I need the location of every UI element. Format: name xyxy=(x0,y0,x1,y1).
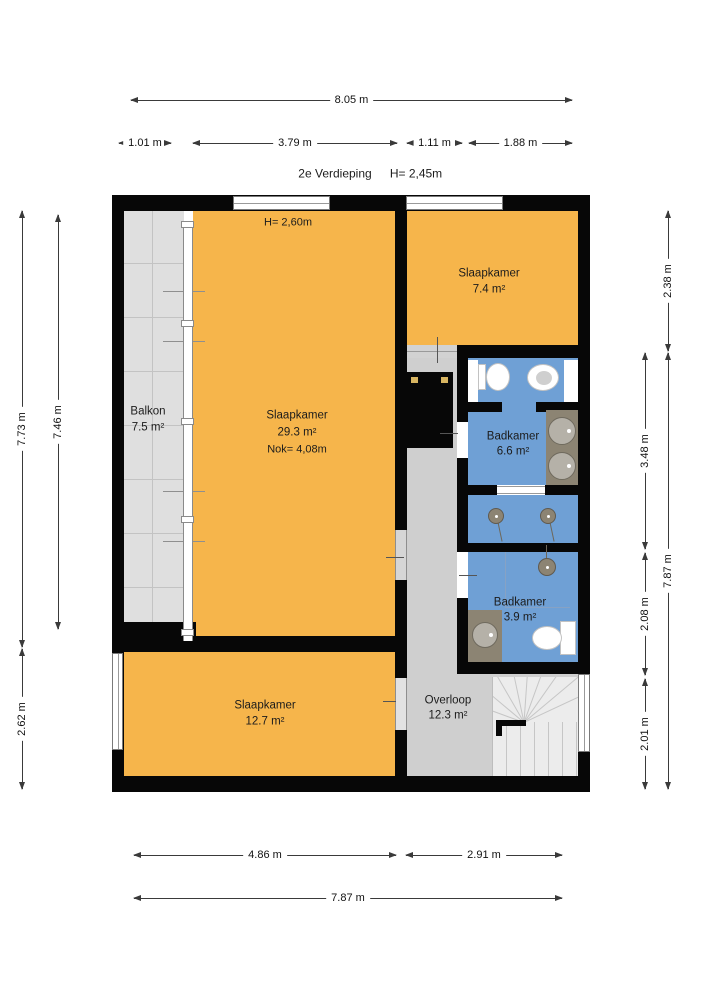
wall-bedroom-right-upper xyxy=(395,211,407,530)
wall-shower-bottom xyxy=(457,543,590,552)
stairs-lower-treads xyxy=(492,722,579,777)
wall-bedroom-onder-right-a xyxy=(395,652,407,678)
wall-bathroom-bottom xyxy=(457,662,590,674)
toilet-icon xyxy=(478,364,486,390)
toilet-niche-right xyxy=(564,360,578,402)
dim-right-outer: 7.87 m xyxy=(662,352,674,790)
floor-ceiling-height: H= 2,45m xyxy=(390,167,442,182)
label-overloop-area: 12.3 m² xyxy=(429,709,468,724)
shower-head-icon xyxy=(488,508,504,524)
dim-bottom-seg-2: 2.91 m xyxy=(405,849,563,861)
dim-top-seg-1: 1.01 m xyxy=(118,137,172,149)
stairs-winder-treads xyxy=(492,677,579,722)
stairs-handrail-post xyxy=(496,720,502,736)
glass-mullion xyxy=(181,221,194,228)
shower-hose xyxy=(546,545,547,559)
floorplan-canvas: 2e Verdieping H= 2,45m xyxy=(0,0,707,1000)
glass-mullion xyxy=(181,320,194,327)
label-hoofd-name: Slaapkamer xyxy=(266,409,327,424)
dim-bottom-seg-1: 4.86 m xyxy=(133,849,397,861)
toilet-niche-left xyxy=(468,360,478,402)
wall-toilet-nook-left xyxy=(468,402,502,412)
wall-shower-left xyxy=(457,485,497,495)
label-hoofd-ceiling: H= 2,60m xyxy=(264,216,312,231)
toilet-icon xyxy=(560,621,576,655)
door-opening-slaapkamer-hoofd xyxy=(395,530,407,580)
stairwell-post-right xyxy=(441,377,448,383)
door-threshold-line xyxy=(407,351,457,352)
stairwell-void xyxy=(407,372,453,448)
wall-middle-row xyxy=(124,636,407,652)
stairwell-post-left xyxy=(411,377,418,383)
dim-left-outer: 7.73 m xyxy=(16,210,28,648)
room-slaapkamer-hoofd-floor xyxy=(193,211,395,636)
door-tick-badkamer-groot xyxy=(440,433,458,434)
label-overloop-name: Overloop xyxy=(425,694,472,709)
dim-right-seg-1: 3.48 m xyxy=(639,352,651,550)
bidet-inner xyxy=(536,371,552,385)
shower-area-floor xyxy=(468,495,578,543)
dim-top-seg-3: 1.11 m xyxy=(406,137,463,149)
glass-mullion xyxy=(181,629,194,636)
label-onder-area: 12.7 m² xyxy=(246,715,285,730)
dim-bottom-total: 7.87 m xyxy=(133,892,563,904)
window-top-right xyxy=(406,196,503,210)
wall-corridor-bath-a xyxy=(457,358,468,422)
washbasin-icon xyxy=(472,622,498,648)
door-tick-slaapkamer-hoofd xyxy=(386,557,404,558)
sliding-door-shower xyxy=(497,486,545,494)
door-tick-slaapkamer-onder xyxy=(383,701,396,702)
label-badkamer-klein-name: Badkamer xyxy=(494,596,546,611)
dim-left-bottom: 2.62 m xyxy=(16,648,28,790)
floor-title: 2e Verdieping xyxy=(298,167,371,182)
dim-top-total: 8.05 m xyxy=(130,94,573,106)
toilet-bowl-icon xyxy=(486,363,510,391)
door-opening-slaapkamer-onder xyxy=(395,678,407,730)
window-top-left xyxy=(233,196,330,210)
wall-shower-right xyxy=(545,485,578,495)
wall-top xyxy=(112,195,590,211)
label-onder-name: Slaapkamer xyxy=(234,699,295,714)
label-badkamer-klein-area: 3.9 m² xyxy=(504,611,537,626)
dim-right-seg-3: 2.01 m xyxy=(639,678,651,790)
dim-right-top: 2.38 m xyxy=(662,210,674,352)
dim-right-seg-2: 2.08 m xyxy=(639,552,651,676)
door-tick-badkamer-klein xyxy=(459,575,477,576)
shower-head-icon xyxy=(540,508,556,524)
toilet-bowl-icon xyxy=(532,626,562,650)
label-balkon-area: 7.5 m² xyxy=(132,421,165,436)
label-klein-name: Slaapkamer xyxy=(458,267,519,282)
window-left-bedroom xyxy=(112,653,123,750)
shower-head-icon xyxy=(538,558,556,576)
dim-left-inner: 7.46 m xyxy=(52,214,64,630)
label-hoofd-area: 29.3 m² xyxy=(278,426,317,441)
washbasin-icon xyxy=(548,452,576,480)
wall-corridor-bath-b xyxy=(457,458,468,547)
glass-mullion xyxy=(181,418,194,425)
dim-top-seg-2: 3.79 m xyxy=(192,137,398,149)
glass-mullion xyxy=(181,516,194,523)
window-right-stairs xyxy=(578,674,590,752)
dim-top-seg-4: 1.88 m xyxy=(468,137,573,149)
label-hoofd-ridge: Nok= 4,08m xyxy=(267,443,327,458)
door-tick-corridor xyxy=(437,337,438,363)
wall-bottom xyxy=(112,776,590,792)
label-klein-area: 7.4 m² xyxy=(473,283,506,298)
label-balkon-name: Balkon xyxy=(130,405,165,420)
balcony-glass-wall xyxy=(183,221,193,641)
washbasin-icon xyxy=(548,417,576,445)
wall-bathroom-top xyxy=(457,345,590,358)
wall-bedroom-onder-right-b xyxy=(395,730,407,777)
label-badkamer-groot-area: 6.6 m² xyxy=(497,445,530,460)
label-badkamer-groot-name: Badkamer xyxy=(487,430,539,445)
